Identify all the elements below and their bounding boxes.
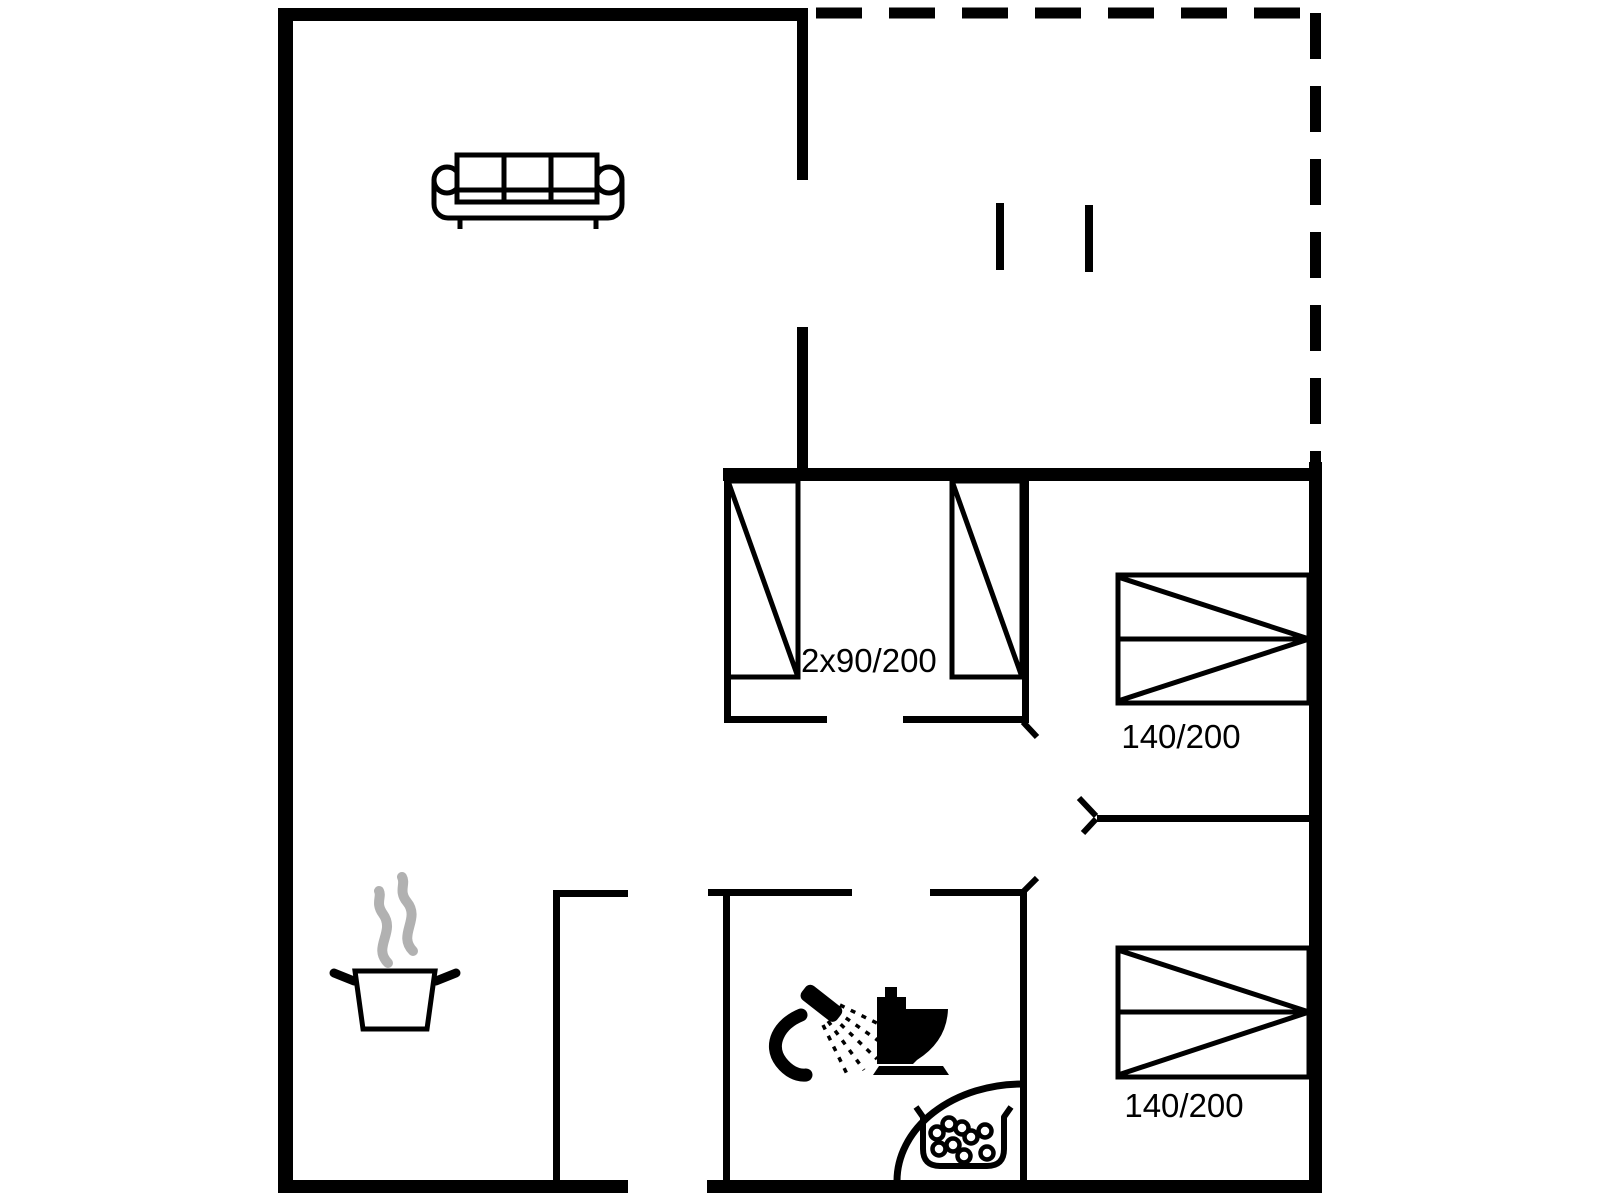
steam-wisp — [402, 877, 413, 951]
cooking-pot-icon — [334, 971, 456, 1029]
terrace-post-icon — [1085, 205, 1093, 272]
bathtub-bubble — [958, 1150, 971, 1163]
toilet-body — [877, 987, 948, 1064]
shower-icon — [775, 982, 893, 1076]
bathtub-bubble — [965, 1131, 978, 1144]
pot-body — [355, 971, 435, 1029]
wall-exterior-top — [278, 8, 808, 21]
double-bed-top-label: 140/200 — [1121, 718, 1240, 755]
wardrobe-beds-label: 2x90/200 — [801, 642, 937, 679]
toilet-icon — [873, 987, 949, 1075]
double-bed-bottom — [1118, 948, 1309, 1077]
wall-bedroom-divider — [1097, 815, 1309, 822]
shower-handle — [775, 1015, 806, 1075]
wall-midroom-bottom-left — [724, 716, 827, 723]
floor-plan: 2x90/200 140/200 140/200 — [0, 0, 1600, 1200]
wall-exterior-left — [278, 8, 293, 1193]
bed-diagonal — [728, 481, 798, 677]
steam-icon — [379, 877, 413, 963]
single-bed-left — [728, 481, 798, 677]
wall-kitchen-top — [553, 890, 628, 897]
sofa-armrest — [596, 167, 622, 193]
pot-handle — [334, 973, 354, 981]
wall-exterior-bottom-right — [707, 1180, 1322, 1193]
bathtub-bubble — [979, 1125, 992, 1138]
door-swing-icon — [1023, 722, 1037, 737]
bathtub-bubble — [981, 1147, 994, 1160]
sofa-back — [457, 155, 597, 202]
bed-diagonal — [952, 481, 1022, 677]
sofa-icon — [434, 155, 622, 229]
bed-diagonal — [1118, 577, 1309, 639]
wall-exterior-bottom-left — [278, 1180, 628, 1193]
bathtub-bubble — [933, 1143, 946, 1156]
interior-walls — [553, 8, 1322, 1180]
pot-handle — [436, 973, 456, 981]
door-swing-marks — [1023, 722, 1096, 891]
terrace-post-icon — [996, 203, 1004, 270]
bed-diagonal — [1118, 639, 1309, 701]
wall-hall-lower — [797, 327, 808, 468]
bed-diagonal — [1118, 950, 1309, 1012]
bed-diagonal — [1118, 1012, 1309, 1075]
toilet-base — [873, 1066, 949, 1075]
wall-exterior-right — [1309, 462, 1322, 1193]
steam-wisp — [379, 891, 388, 963]
bathtub-bubble — [947, 1139, 960, 1152]
wall-bathroom-right — [1020, 889, 1027, 1180]
wall-bathroom-left — [723, 889, 730, 1180]
door-swing-icon — [1024, 878, 1037, 891]
wall-kitchen-left — [553, 890, 560, 1180]
wall-hall-upper — [797, 8, 808, 180]
wall-bathroom-top-right — [930, 889, 1027, 896]
floor-plan-drawing: 2x90/200 140/200 140/200 — [0, 0, 1600, 1200]
single-bed-right — [952, 481, 1022, 677]
wall-midroom-bottom-right — [903, 716, 1029, 723]
shower-spray — [832, 1016, 877, 1059]
terrace-dashed-outline — [816, 13, 1321, 462]
double-bed-bottom-label: 140/200 — [1124, 1087, 1243, 1124]
door-swing-icon — [1079, 798, 1096, 816]
corner-bathtub-icon — [897, 1084, 1022, 1181]
double-bed-top — [1118, 575, 1309, 703]
door-swing-icon — [1083, 819, 1096, 833]
